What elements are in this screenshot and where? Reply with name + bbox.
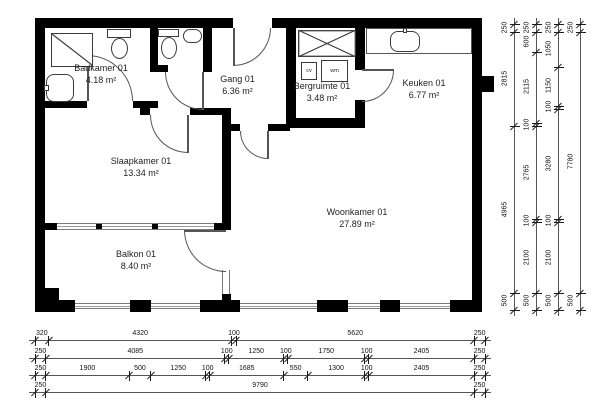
room-label-balkon: Balkon 01 8.40 m²: [84, 249, 188, 272]
dimension-label: 250: [22, 365, 58, 372]
dimension-label: 250: [502, 9, 509, 45]
room-area: 3.48 m²: [270, 93, 374, 105]
room-label-slaapkamer: Slaapkamer 01 13.34 m²: [90, 156, 192, 179]
dimension-label: 600: [524, 23, 531, 59]
dimension-label: 250: [462, 365, 498, 372]
room-label-bergruimte: Bergruimte 01 3.48 m²: [270, 81, 374, 104]
dimension-label: 100: [349, 365, 385, 372]
dimension-line-bottom: [29, 375, 491, 376]
room-label-badkamer: Badkamer 01 4.18 m²: [55, 63, 147, 86]
room-name: Badkamer 01: [55, 63, 147, 75]
room-label-keuken: Keuken 01 6.77 m²: [372, 78, 476, 101]
dimension-label: 1750: [308, 348, 344, 355]
room-area: 13.34 m²: [90, 168, 192, 180]
dimension-label: 4965: [502, 191, 509, 227]
room-area: 8.40 m²: [84, 261, 188, 273]
dimension-label: 500: [502, 283, 509, 319]
dimension-label: 100: [216, 330, 252, 337]
dimension-label: 5620: [337, 330, 373, 337]
cv-boiler-label: cv: [301, 69, 317, 75]
dimension-label: 550: [278, 365, 314, 372]
dimension-line-right: [580, 18, 581, 316]
dimension-label: 100: [524, 106, 531, 142]
room-label-woonkamer: Woonkamer 01 27.89 m²: [305, 207, 409, 230]
dimension-label: 2815: [502, 61, 509, 97]
dimension-label: 3280: [546, 145, 553, 181]
dimension-line-right: [536, 18, 537, 316]
dimension-label: 4320: [122, 330, 158, 337]
dimension-label: 320: [24, 330, 60, 337]
room-area: 27.89 m²: [305, 219, 409, 231]
dimension-line-bottom: [29, 340, 491, 341]
room-name: Bergruimte 01: [270, 81, 374, 93]
dimension-line-bottom: [29, 358, 491, 359]
dimension-label: 1900: [69, 365, 105, 372]
dimension-label: 100: [524, 202, 531, 238]
dimension-label: 1685: [229, 365, 265, 372]
room-name: Slaapkamer 01: [90, 156, 192, 168]
washing-machine-label: wm: [321, 69, 348, 75]
dimension-label: 250: [22, 382, 58, 389]
dimension-label: 2100: [546, 239, 553, 275]
dimension-label: 100: [546, 89, 553, 125]
dimension-label: 2115: [524, 69, 531, 105]
room-name: Balkon 01: [84, 249, 188, 261]
dimension-label: 250: [462, 348, 498, 355]
dimension-label: 250: [462, 330, 498, 337]
dimension-layer: 3204320100562025025040851001250100175010…: [0, 0, 600, 400]
room-name: Keuken 01: [372, 78, 476, 90]
dimension-label: 2100: [524, 239, 531, 275]
dimension-label: 250: [22, 348, 58, 355]
room-area: 6.77 m²: [372, 90, 476, 102]
dimension-label: 100: [268, 348, 304, 355]
dimension-label: 100: [546, 202, 553, 238]
dimension-label: 2405: [403, 365, 439, 372]
floor-plan-canvas: cv wm Badkamer 01 4.18 m² Gang 01 6.36 m…: [0, 0, 600, 400]
dimension-label: 4085: [117, 348, 153, 355]
dimension-line-bottom: [29, 392, 491, 393]
dimension-label: 100: [190, 365, 226, 372]
dimension-label: 7780: [568, 144, 575, 180]
room-name: Woonkamer 01: [305, 207, 409, 219]
dimension-label: 100: [349, 348, 385, 355]
dimension-line-right: [514, 18, 515, 316]
dimension-line-right: [558, 18, 559, 316]
dimension-label: 2765: [524, 154, 531, 190]
dimension-label: 2405: [403, 348, 439, 355]
dimension-label: 500: [524, 283, 531, 319]
dimension-label: 9790: [242, 382, 278, 389]
dimension-label: 250: [462, 382, 498, 389]
dimension-label: 500: [568, 283, 575, 319]
room-area: 4.18 m²: [55, 75, 147, 87]
dimension-label: 500: [122, 365, 158, 372]
dimension-label: 500: [546, 283, 553, 319]
dimension-label: 1050: [546, 31, 553, 67]
dimension-label: 250: [568, 9, 575, 45]
